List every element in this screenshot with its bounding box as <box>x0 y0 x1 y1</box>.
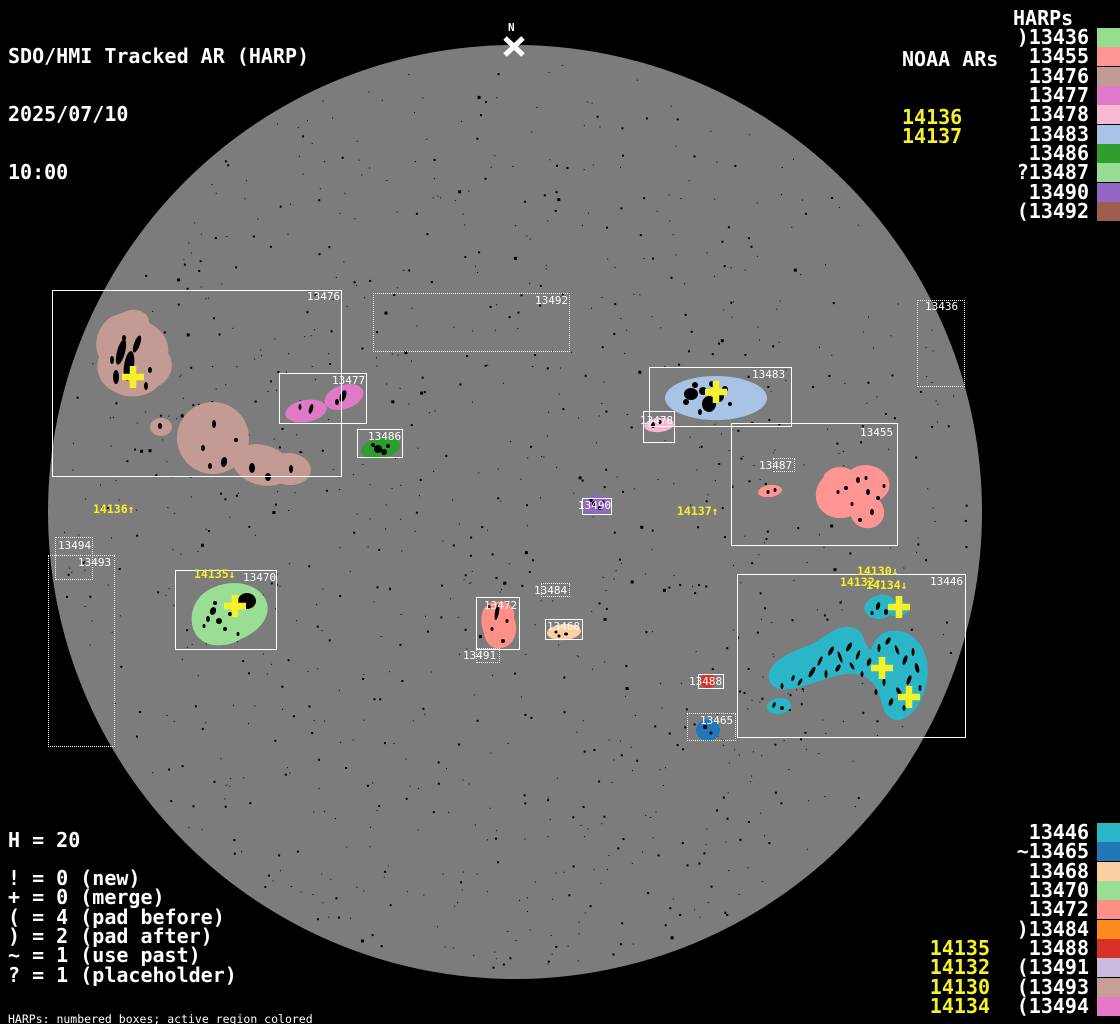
harp-box-label: 13493 <box>78 557 111 568</box>
harp-box-label: 13491 <box>463 650 496 661</box>
harp-color-swatch <box>1097 997 1120 1016</box>
harp-box-label: 13472 <box>484 600 517 611</box>
harp-color-swatch <box>1097 920 1120 939</box>
harp-color-swatch <box>1097 900 1120 919</box>
harp-color-swatch <box>1097 939 1120 958</box>
harp-color-swatch <box>1097 958 1120 977</box>
harp-box-label: 13478 <box>640 415 673 426</box>
pad-stat-line: ? = 1 (placeholder) <box>8 966 237 985</box>
harp-box-label: 13488 <box>689 676 722 687</box>
harp-box-label: 13492 <box>535 295 568 306</box>
harp-color-swatch <box>1097 28 1120 47</box>
harp-box-13436 <box>917 300 965 387</box>
harp-box-label: 13490 <box>578 500 611 511</box>
harp-count: H = 20 <box>8 831 80 850</box>
harp-box-label: 13483 <box>752 369 785 380</box>
pad-stats-block: ! = 0 (new)+ = 0 (merge)( = 4 (pad befor… <box>8 869 237 985</box>
harp-color-swatch <box>1097 86 1120 105</box>
north-label: N <box>508 22 515 33</box>
harp-box-13455 <box>731 423 898 546</box>
harp-legend-row: 14134(13494 <box>860 997 1120 1016</box>
harp-color-swatch <box>1097 163 1120 182</box>
harp-color-swatch <box>1097 144 1120 163</box>
harp-box-label: 13446 <box>930 576 963 587</box>
harp-box-label: 13465 <box>700 715 733 726</box>
footer-notes: HARPs: numbered boxes; active region col… <box>8 991 410 1024</box>
noaa-shift-label: 14136↑ <box>93 504 135 516</box>
harp-color-swatch <box>1097 862 1120 881</box>
harp-color-swatch <box>1097 183 1120 202</box>
harp-number: (13494 <box>1017 997 1089 1016</box>
harp-color-swatch <box>1097 67 1120 86</box>
harp-box-label: 13436 <box>925 301 958 312</box>
harp-box-label: 13470 <box>243 572 276 583</box>
harp-color-swatch <box>1097 881 1120 900</box>
harps-legend-top: )13436134551347613477134781348313486?134… <box>860 28 1120 221</box>
noaa-ar-number: 14134 <box>930 997 990 1016</box>
harps-legend-bottom: 13446~13465134681347013472)1348414135134… <box>860 823 1120 1016</box>
page-title: SDO/HMI Tracked AR (HARP) <box>8 47 309 66</box>
harp-box-label: 13455 <box>860 427 893 438</box>
observation-time: 10:00 <box>8 163 309 182</box>
harp-box-label: 13494 <box>58 540 91 551</box>
harp-color-swatch <box>1097 202 1120 221</box>
noaa-shift-label: 14135↓ <box>194 569 236 581</box>
harp-box-label: 13487 <box>759 460 792 471</box>
noaa-shift-label: 14137↑ <box>677 506 719 518</box>
harp-box-label: 13484 <box>534 585 567 596</box>
harp-box-label: 13468 <box>547 621 580 632</box>
harp-color-swatch <box>1097 105 1120 124</box>
noaa-shift-label: 14134↓ <box>866 580 908 592</box>
harp-box-13493 <box>48 555 115 747</box>
harp-legend-row: (13492 <box>860 202 1120 221</box>
harp-color-swatch <box>1097 842 1120 861</box>
harp-color-swatch <box>1097 978 1120 997</box>
harp-box-13446 <box>737 574 966 738</box>
harp-box-label: 13477 <box>332 375 365 386</box>
harp-number: (13492 <box>1017 202 1089 221</box>
sdo-hmi-harp-view: SDO/HMI Tracked AR (HARP) 2025/07/10 10:… <box>0 0 1120 1024</box>
observation-date: 2025/07/10 <box>8 105 309 124</box>
harp-color-swatch <box>1097 125 1120 144</box>
harp-color-swatch <box>1097 823 1120 842</box>
harp-box-label: 13486 <box>368 431 401 442</box>
harp-box-label: 13476 <box>307 291 340 302</box>
harp-color-swatch <box>1097 47 1120 66</box>
footer-note-harps: HARPs: numbered boxes; active region col… <box>8 1014 410 1024</box>
page-title-block: SDO/HMI Tracked AR (HARP) 2025/07/10 10:… <box>8 8 309 221</box>
